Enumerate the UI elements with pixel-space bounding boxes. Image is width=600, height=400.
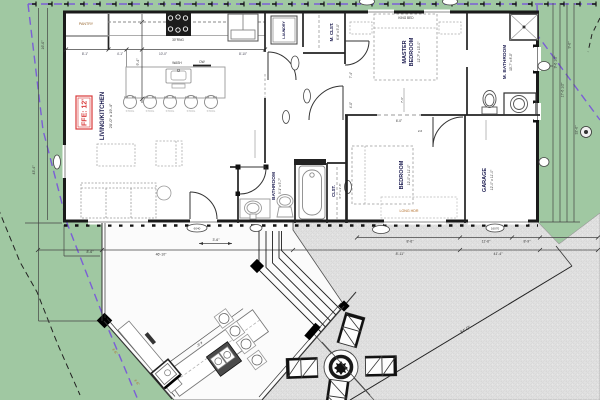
svg-text:CLST.: CLST. (331, 185, 336, 197)
svg-text:BATHROOM: BATHROOM (271, 172, 277, 200)
svg-text:46'-10": 46'-10" (156, 253, 168, 257)
svg-text:LONG HDR: LONG HDR (400, 209, 419, 213)
svg-text:9'-0": 9'-0" (568, 41, 572, 49)
svg-text:11'-6": 11'-6" (482, 240, 491, 244)
svg-text:M. BATHROOM: M. BATHROOM (502, 45, 508, 80)
svg-text:6'-0": 6'-0" (396, 119, 402, 123)
svg-text:6'-8" x 5'-0": 6'-8" x 5'-0" (336, 24, 340, 40)
svg-text:LIVING/KITCHEN: LIVING/KITCHEN (100, 92, 106, 140)
svg-text:8'-6": 8'-6" (87, 250, 95, 254)
svg-text:16'-0": 16'-0" (41, 40, 45, 50)
svg-text:9'-4": 9'-4" (136, 58, 140, 66)
svg-text:STOOL: STOOL (126, 109, 135, 113)
svg-text:STOOL: STOOL (207, 109, 216, 113)
svg-text:STOOL: STOOL (146, 109, 155, 113)
svg-text:4'-0": 4'-0" (349, 102, 353, 108)
svg-text:7'-4": 7'-4" (349, 72, 353, 78)
svg-text:43'-4": 43'-4" (32, 165, 36, 175)
svg-text:8'-10": 8'-10" (239, 52, 247, 56)
svg-text:12'-0" x 11'-0": 12'-0" x 11'-0" (490, 169, 494, 190)
svg-text:12'-7" x 13'-0": 12'-7" x 13'-0" (417, 41, 421, 63)
svg-text:16070: 16070 (491, 227, 500, 231)
svg-text:BEDROOM: BEDROOM (409, 37, 415, 66)
svg-text:20'-0" x 19'-4": 20'-0" x 19'-4" (108, 103, 113, 128)
svg-text:3'-6": 3'-6" (213, 238, 221, 242)
svg-text:7'-6": 7'-6" (400, 97, 404, 103)
svg-text:12'-0" x 11'-0": 12'-0" x 11'-0" (407, 164, 411, 185)
svg-text:6040: 6040 (194, 227, 201, 231)
svg-text:9'-1" x 5'-7": 9'-1" x 5'-7" (278, 178, 282, 194)
svg-text:BEDROOM: BEDROOM (399, 160, 405, 189)
svg-text:2-6: 2-6 (418, 129, 423, 133)
svg-text:STOOL: STOOL (166, 109, 175, 113)
svg-text:9'-6 1/2": 9'-6 1/2" (554, 55, 558, 69)
svg-text:WASH: WASH (172, 61, 182, 65)
svg-text:8'-6": 8'-6" (407, 240, 415, 244)
svg-text:41'-4": 41'-4" (494, 252, 504, 256)
svg-text:6'-7" x 2'-6": 6'-7" x 2'-6" (338, 183, 342, 198)
svg-text:10'-0": 10'-0" (159, 52, 167, 56)
svg-text:MASTER: MASTER (402, 40, 408, 63)
svg-text:32'-0": 32'-0" (575, 125, 579, 135)
svg-text:KING BED: KING BED (398, 16, 414, 20)
svg-text:LAUNDRY: LAUNDRY (282, 21, 286, 39)
svg-text:10'-7" x 8'-0": 10'-7" x 8'-0" (509, 53, 513, 71)
svg-text:8'-11": 8'-11" (396, 252, 405, 256)
svg-text:M. CLST.: M. CLST. (329, 23, 334, 42)
svg-text:FFE: 12': FFE: 12' (82, 99, 89, 126)
svg-text:PANTRY: PANTRY (79, 22, 94, 26)
svg-text:4'-1": 4'-1" (117, 52, 123, 56)
svg-text:STOOL: STOOL (187, 109, 196, 113)
svg-text:8'-1": 8'-1" (82, 52, 88, 56)
svg-text:GARAGE: GARAGE (482, 168, 488, 192)
svg-text:17'-6 1/2": 17'-6 1/2" (561, 82, 565, 98)
svg-text:8'-9": 8'-9" (524, 240, 532, 244)
svg-text:30"RNG: 30"RNG (172, 38, 184, 42)
svg-text:DW: DW (199, 60, 204, 64)
